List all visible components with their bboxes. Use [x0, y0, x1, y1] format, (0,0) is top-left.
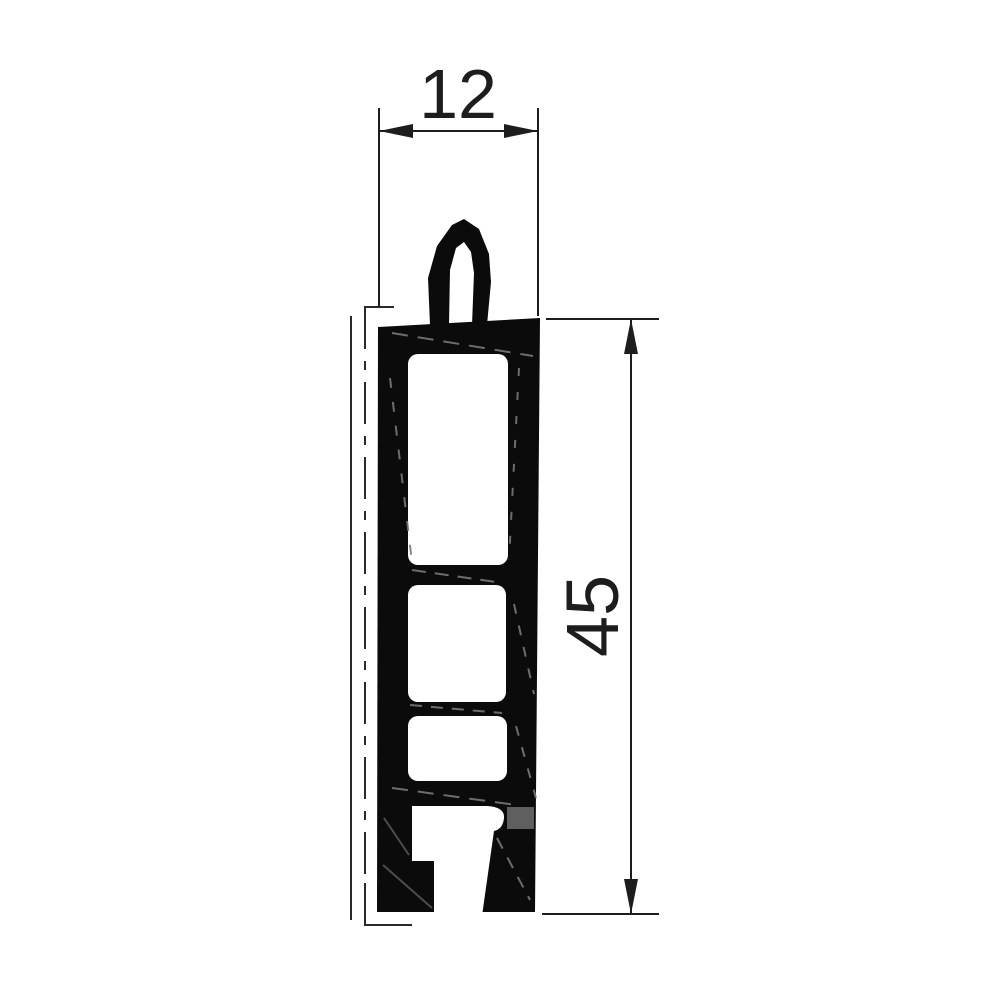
drawing-canvas: 12 45	[0, 0, 1000, 1000]
chamber-1	[408, 354, 508, 565]
chamber-2	[408, 585, 506, 702]
height-arrow-top	[624, 319, 638, 354]
width-arrow-left	[379, 124, 413, 138]
width-dimension-label: 12	[419, 55, 497, 133]
chamber-3	[408, 716, 507, 781]
profile-drawing: 12 45	[0, 0, 1000, 1000]
width-dimension	[379, 108, 538, 316]
height-dimension-label: 45	[551, 575, 634, 657]
height-arrow-bottom	[624, 879, 638, 914]
insert-gray-block	[507, 807, 534, 829]
top-reference-bracket	[365, 307, 394, 316]
width-arrow-right	[504, 124, 538, 138]
gasket-hook	[428, 219, 491, 325]
